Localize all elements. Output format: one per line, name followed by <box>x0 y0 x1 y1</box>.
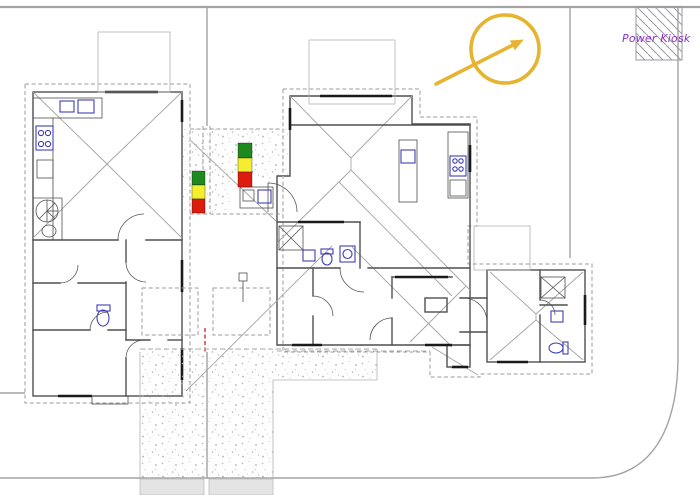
issue-marker-1[interactable] <box>192 171 205 213</box>
road-crossings <box>140 479 273 495</box>
driveway-paving <box>140 380 273 478</box>
patio-paving <box>140 348 377 380</box>
issue-marker-2[interactable] <box>238 143 252 187</box>
pergola-outline-2 <box>213 288 270 335</box>
site-plan-page: Power Kiosk <box>0 0 700 495</box>
path-west <box>98 32 170 92</box>
power-kiosk: Power Kiosk <box>622 7 691 60</box>
path-east <box>474 226 530 270</box>
power-kiosk-label: Power Kiosk <box>622 32 691 45</box>
floor-plan-drawing: Power Kiosk <box>0 0 700 495</box>
direction-arrow-annotation[interactable] <box>436 15 539 84</box>
unit-b-roof-eave <box>283 89 592 377</box>
